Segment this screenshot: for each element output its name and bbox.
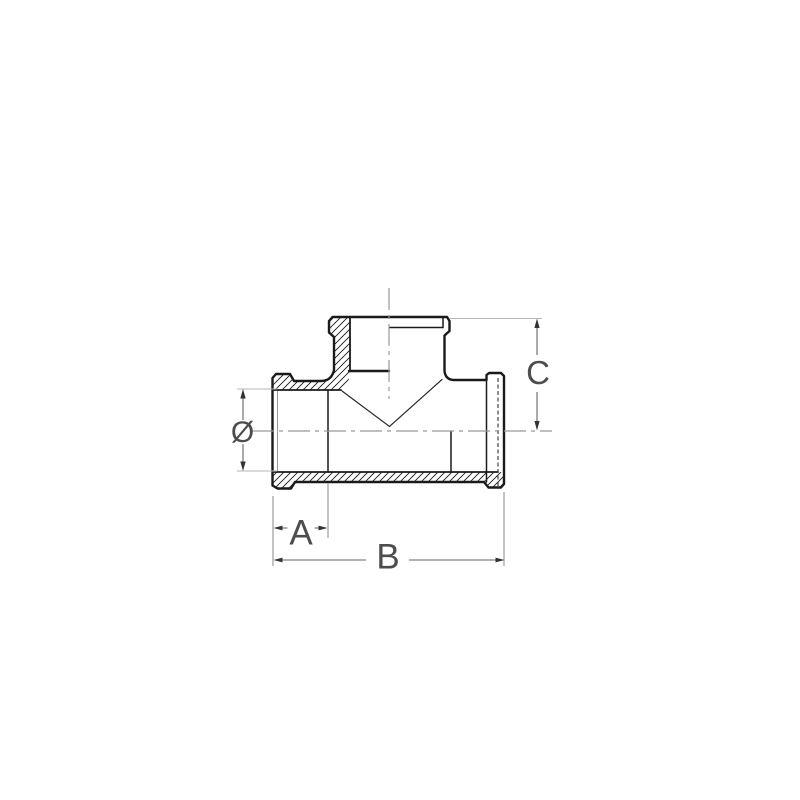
diameter-arrow-down xyxy=(240,462,245,472)
diameter-label: Ø xyxy=(231,416,254,449)
b-label: B xyxy=(376,538,399,577)
c-label: C xyxy=(526,354,550,391)
a-label: A xyxy=(289,514,313,553)
drawing-canvas: Ø A B C xyxy=(0,0,800,800)
a-arrow-left xyxy=(274,526,283,531)
section-hatch-upper-left xyxy=(273,317,351,390)
c-arrow-down xyxy=(534,421,539,431)
dimension-a: A xyxy=(274,483,329,553)
c-arrow-up xyxy=(534,319,539,329)
section-hatch-bottom xyxy=(273,472,505,489)
b-arrow-right xyxy=(496,558,505,563)
diameter-arrow-up xyxy=(240,389,245,399)
a-arrow-right xyxy=(319,526,328,531)
dimension-diameter: Ø xyxy=(231,389,277,471)
tee-body-outline xyxy=(273,317,505,489)
tee-fitting-drawing: Ø A B C xyxy=(0,0,800,800)
b-arrow-left xyxy=(274,558,283,563)
